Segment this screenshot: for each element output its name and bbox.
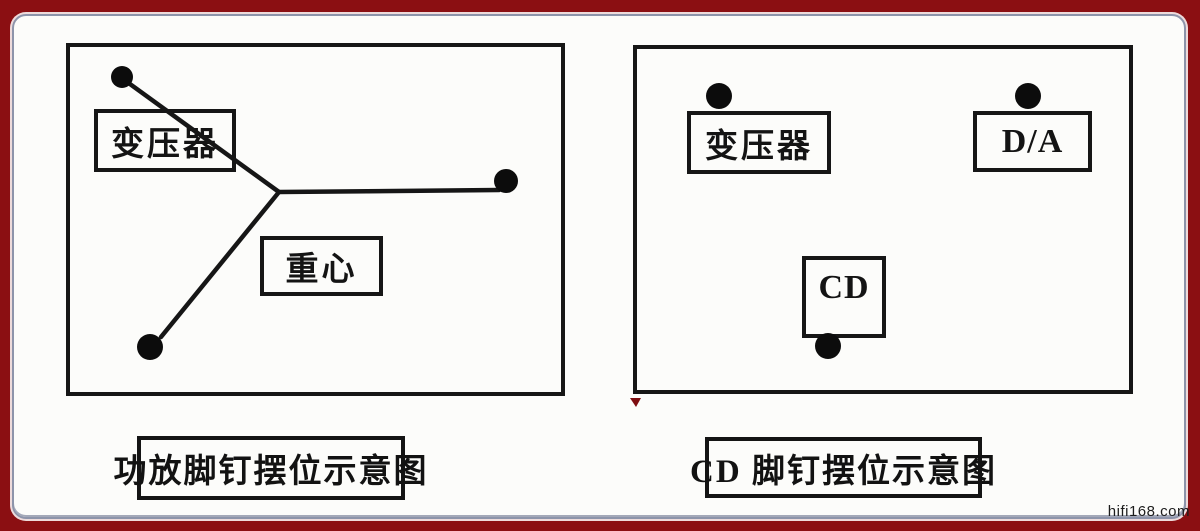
- cd-label-box: CD: [802, 256, 886, 338]
- cd-transformer-label: 变压器: [705, 119, 813, 167]
- amp-diagram-box: 变压器 重心: [66, 43, 565, 396]
- spike-dot: [111, 66, 133, 88]
- amp-spike-lines-svg: [66, 43, 565, 396]
- spike-dot: [1015, 83, 1041, 109]
- da-label: D/A: [1002, 123, 1064, 161]
- da-label-box: D/A: [973, 111, 1092, 172]
- spike-dot: [706, 83, 732, 109]
- cd-transformer-label-box: 变压器: [687, 111, 831, 174]
- cd-caption-box: CD 脚钉摆位示意图: [705, 437, 982, 498]
- red-ink-mark: [630, 398, 641, 407]
- red-frame: 变压器 重心 功放脚钉摆位示意图 变压器 D/A CD CD 脚钉摆位示意图 h…: [0, 0, 1200, 531]
- amp-caption-text: 功放脚钉摆位示意图: [114, 444, 429, 492]
- watermark-text: hifi168.com: [1108, 503, 1190, 520]
- amp-transformer-label-box: 变压器: [94, 109, 236, 172]
- amp-gravity-label: 重心: [286, 242, 358, 290]
- amp-transformer-label: 变压器: [111, 117, 219, 165]
- cd-caption-text: CD 脚钉摆位示意图: [690, 444, 997, 492]
- spike-dot: [494, 169, 518, 193]
- spike-connector-line: [279, 190, 499, 192]
- amp-gravity-label-box: 重心: [260, 236, 383, 296]
- cd-label: CD: [818, 269, 869, 307]
- spike-dot: [137, 334, 163, 360]
- cd-diagram-box: 变压器 D/A CD: [633, 45, 1133, 394]
- cd-spike-dots-svg: [633, 45, 1133, 394]
- amp-caption-box: 功放脚钉摆位示意图: [137, 436, 405, 500]
